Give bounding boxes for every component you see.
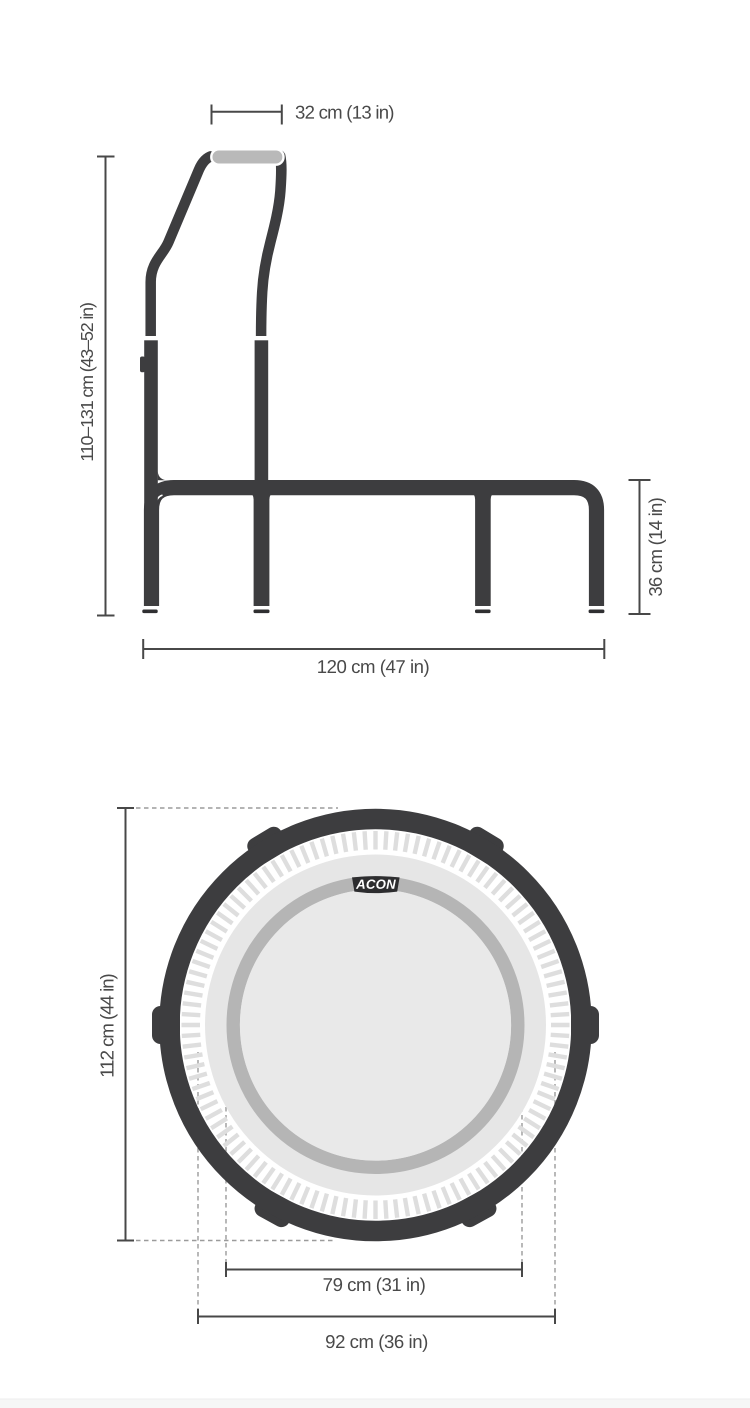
svg-text:112 cm (44 in): 112 cm (44 in): [97, 973, 118, 1077]
svg-text:92 cm (36 in): 92 cm (36 in): [325, 1331, 428, 1352]
svg-text:ACON: ACON: [355, 877, 396, 892]
svg-text:32 cm (13 in): 32 cm (13 in): [295, 102, 394, 123]
svg-text:110–131 cm (43–52 in): 110–131 cm (43–52 in): [77, 303, 97, 462]
svg-text:79 cm (31 in): 79 cm (31 in): [323, 1274, 426, 1295]
svg-text:120 cm (47 in): 120 cm (47 in): [317, 656, 430, 677]
svg-text:36 cm (14 in): 36 cm (14 in): [645, 497, 666, 596]
